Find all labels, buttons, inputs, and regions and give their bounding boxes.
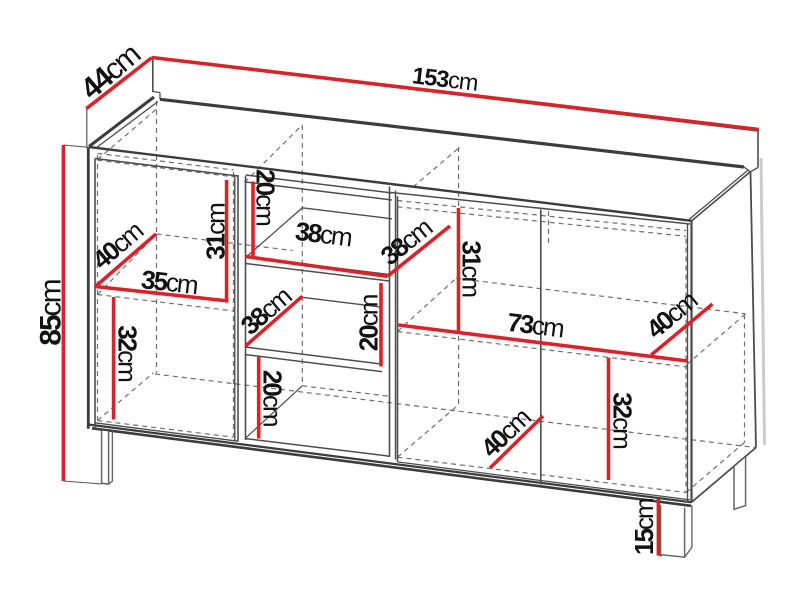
svg-text:32cm: 32cm [608, 392, 638, 448]
svg-text:32cm: 32cm [113, 325, 143, 381]
svg-text:20cm: 20cm [251, 169, 281, 225]
svg-text:20cm: 20cm [354, 295, 384, 351]
svg-text:20cm: 20cm [258, 370, 288, 426]
svg-text:31cm: 31cm [201, 204, 231, 260]
svg-text:35cm: 35cm [140, 264, 199, 300]
svg-text:15cm: 15cm [629, 499, 659, 555]
svg-text:31cm: 31cm [457, 241, 487, 297]
svg-text:85cm: 85cm [35, 279, 68, 345]
